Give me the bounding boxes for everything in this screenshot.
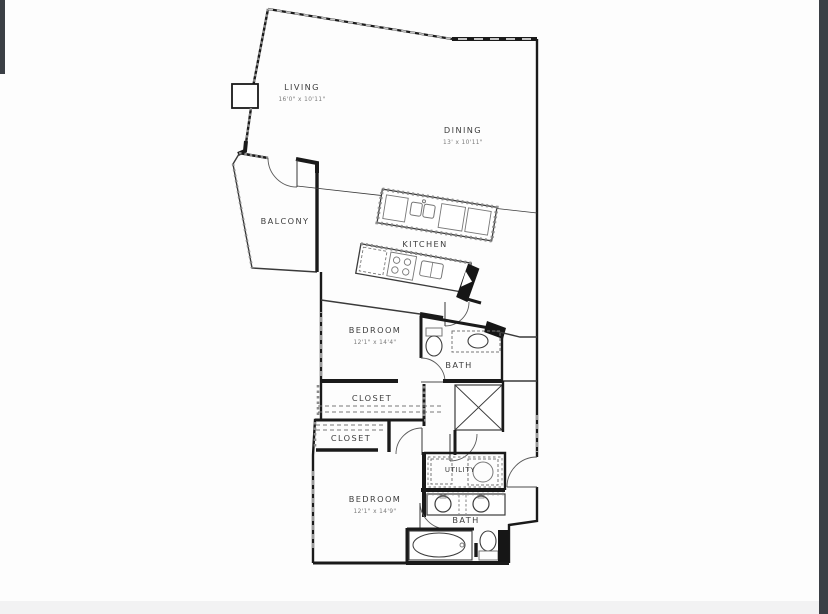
entry-door <box>507 457 537 487</box>
dryer-door-icon <box>473 462 493 482</box>
closet1-label: CLOSET <box>352 393 392 403</box>
entry-door-arc <box>507 457 537 487</box>
bath2-label: BATH <box>452 515 479 525</box>
hall-door-arc <box>396 428 422 454</box>
bath1-top-wall <box>421 316 495 329</box>
floor-plan-page: LIVING 16'0" x 10'11" DINING 13' x 10'11… <box>0 0 828 614</box>
balcony-structure <box>233 153 317 272</box>
closet2-shelf-lines <box>316 425 386 430</box>
balcony-door-wall <box>239 153 268 158</box>
hatch-overlay <box>253 9 268 87</box>
living-dims: 16'0" x 10'11" <box>278 97 325 103</box>
outer-walls <box>232 9 537 563</box>
balcony-column <box>232 84 258 108</box>
balcony-door-jamb <box>296 159 317 173</box>
counter <box>356 244 472 293</box>
toilet-icon <box>480 531 496 551</box>
balcony-label: BALCONY <box>261 216 310 226</box>
balcony-door-arc <box>268 158 297 187</box>
living-label: LIVING <box>284 82 320 92</box>
toilet-icon <box>426 336 442 356</box>
bath2-vanity <box>424 490 505 517</box>
bath1-label: BATH <box>445 360 472 370</box>
closet2-label: CLOSET <box>331 433 371 443</box>
wall-right-lower <box>509 487 537 563</box>
bath1-door-arc <box>421 358 445 382</box>
wall-block <box>498 530 509 562</box>
bedroom1-top-wall <box>321 300 420 314</box>
bedroom2-label: BEDROOM <box>349 494 402 504</box>
kitchen-counter <box>354 244 480 303</box>
balcony-rail <box>233 154 317 272</box>
toilet-base-icon <box>479 551 498 560</box>
bedroom1-label: BEDROOM <box>349 325 402 335</box>
dining-label: DINING <box>444 125 482 135</box>
wall-left <box>313 272 321 563</box>
dining-dims: 13' x 10'11" <box>443 140 483 146</box>
utility-label: UTILITY <box>445 466 475 474</box>
bedroom2-dims: 12'1" x 14'9" <box>354 509 397 515</box>
bathtub-icon <box>413 533 465 557</box>
toilet-tank-icon <box>426 328 442 336</box>
sink-icon <box>468 334 488 348</box>
bedroom1-dims: 12'1" x 14'4" <box>354 340 397 346</box>
floor-plan-drawing: LIVING 16'0" x 10'11" DINING 13' x 10'11… <box>0 0 828 614</box>
kitchen-label: KITCHEN <box>402 239 447 249</box>
kitchen-island <box>377 189 497 241</box>
bath1-fixtures <box>421 316 537 382</box>
